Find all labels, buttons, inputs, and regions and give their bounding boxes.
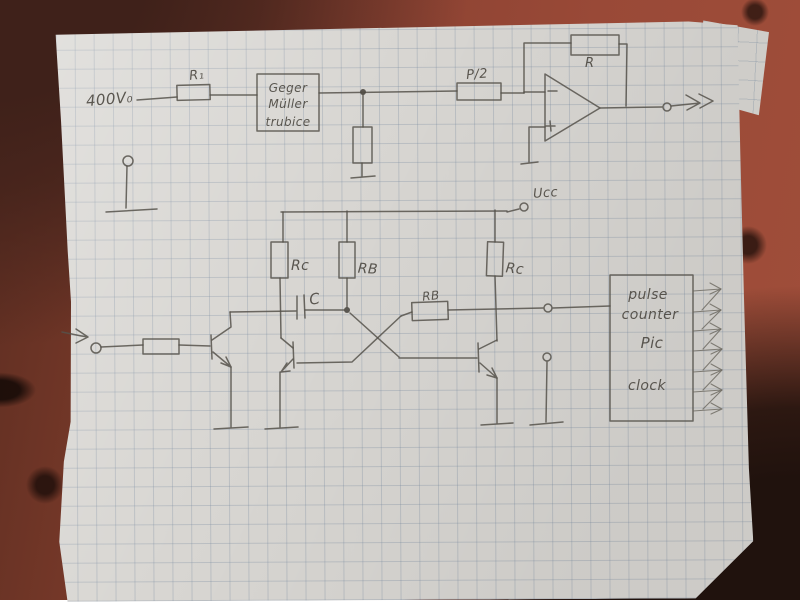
input-resistor [143, 339, 179, 354]
counter-label-line1: pulse [627, 287, 668, 303]
ucc-terminal [507, 203, 528, 212]
photo-of-schematic: 400V₀ R₁ Geger Müller trubice [0, 0, 800, 600]
counter-label-line3: Pic [641, 334, 664, 352]
ucc-label: Ucc [533, 185, 559, 202]
input-terminal [91, 343, 101, 353]
rc-left-label: Rc [291, 258, 309, 274]
circuit-schematic: 400V₀ R₁ Geger Müller trubice [0, 0, 800, 600]
ground-bar [265, 427, 298, 429]
resistor-r1 [177, 85, 257, 101]
counter-label-line4: clock [628, 378, 666, 394]
hv-supply-label: 400V₀ [85, 88, 133, 110]
gm-tube-label-line1: Geger [269, 81, 308, 95]
output-terminal [663, 103, 671, 111]
noninverting-ground [521, 127, 545, 164]
cap-label: C [308, 289, 321, 308]
counter-label-line2: counter [622, 307, 680, 323]
signal-wire-to-divider [319, 89, 457, 95]
resistor-rb-mid [401, 301, 543, 320]
transistor-q3 [478, 340, 513, 425]
gm-tube-box: Geger Müller trubice [257, 74, 319, 131]
cross-coupling-wires [297, 313, 477, 363]
resistor-r1-label: R₁ [188, 67, 205, 83]
flipflop-output [544, 304, 610, 312]
aux-ground-terminal [530, 353, 563, 425]
p2-label: P/2 [466, 66, 489, 82]
rb-top-label: RB [357, 261, 378, 278]
open-terminal-icon [520, 203, 528, 211]
capacitor-plates [297, 295, 305, 319]
ground-bar [351, 176, 375, 178]
gm-tube-label-line2: Müller [268, 97, 308, 111]
opamp-stage [521, 35, 713, 164]
ground-bar [481, 423, 513, 425]
supply-rail [281, 211, 507, 212]
resistor-rc-left [271, 212, 288, 338]
transistor-q1 [211, 312, 248, 429]
opamp-triangle [545, 74, 600, 141]
feedback-resistor [571, 35, 619, 55]
rc-right-label: Rc [505, 260, 525, 278]
coupling-capacitor [230, 295, 350, 319]
open-terminal-icon [543, 353, 551, 361]
resistor-divider-p2 [457, 83, 524, 100]
input-arrow-icon [62, 329, 88, 343]
gm-tube-label-line3: trubice [266, 115, 311, 129]
hv-input-wire [137, 97, 177, 100]
counter-output-pins [693, 283, 722, 414]
junction-dot [344, 307, 350, 313]
resistor-rc-right [486, 210, 503, 341]
hv-ground-terminal [106, 156, 157, 212]
resistor-rb-top [339, 211, 355, 307]
pulldown-resistor-branch [351, 92, 375, 178]
transistor-q2 [265, 338, 298, 429]
rb-mid-label: RB [422, 288, 441, 304]
trigger-input [62, 329, 210, 354]
ground-bar [106, 209, 157, 212]
open-terminal-icon [123, 156, 133, 166]
opamp-plus-icon [546, 121, 555, 131]
pulse-counter-box: pulse counter Pic clock [610, 275, 693, 421]
output-arrow-icon [671, 94, 713, 110]
feedback-resistor-label: R [585, 56, 594, 71]
output-terminal [544, 304, 552, 312]
ground-bar [214, 427, 248, 429]
